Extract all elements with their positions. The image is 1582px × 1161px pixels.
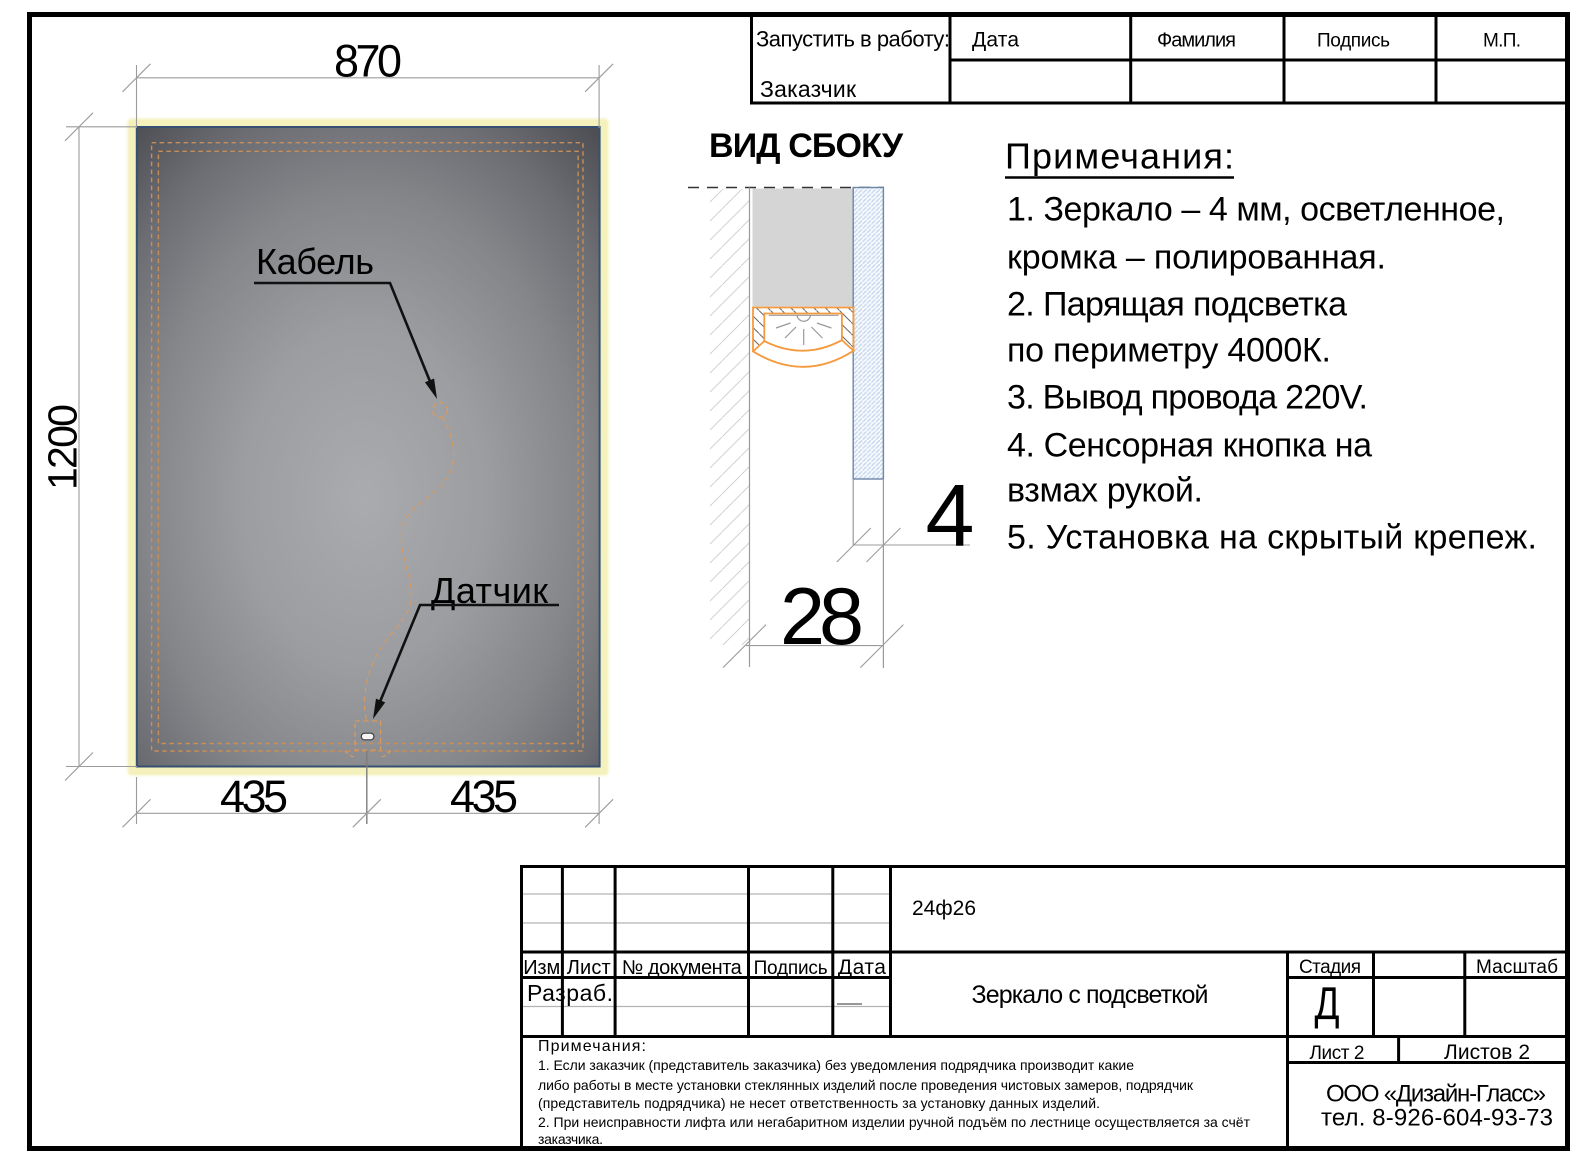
svg-text:1. Если заказчик (представител: 1. Если заказчик (представитель заказчик… xyxy=(538,1057,1134,1073)
svg-text:ООО «Дизайн-Гласс»: ООО «Дизайн-Гласс» xyxy=(1326,1081,1546,1108)
svg-text:либо работы в месте установки: либо работы в месте установки стеклянных… xyxy=(538,1077,1194,1093)
svg-text:1. Зеркало – 4 мм, осветленное: 1. Зеркало – 4 мм, осветленное, xyxy=(1007,191,1505,229)
svg-text:24ф26: 24ф26 xyxy=(912,897,976,920)
svg-text:Заказчик: Заказчик xyxy=(760,76,857,102)
svg-text:(представитель подрядчика) не: (представитель подрядчика) не несет отве… xyxy=(538,1095,1100,1111)
svg-text:Подпись: Подпись xyxy=(754,958,828,979)
svg-text:Подпись: Подпись xyxy=(1317,31,1390,52)
svg-text:2. При неисправности лифта или: 2. При неисправности лифта или негабарит… xyxy=(538,1114,1251,1130)
svg-text:28: 28 xyxy=(780,572,864,662)
svg-text:2. Парящая подсветка: 2. Парящая подсветка xyxy=(1007,286,1347,324)
svg-text:3. Вывод провода 220V.: 3. Вывод провода 220V. xyxy=(1007,379,1368,417)
svg-text:Зеркало с подсветкой: Зеркало с подсветкой xyxy=(972,981,1209,1009)
svg-text:Примечания:: Примечания: xyxy=(1005,136,1234,177)
svg-text:Кабель: Кабель xyxy=(256,241,374,282)
svg-text:Фамилия: Фамилия xyxy=(1157,30,1236,52)
svg-text:Изм: Изм xyxy=(523,957,560,979)
svg-text:заказчика.: заказчика. xyxy=(538,1131,603,1147)
svg-text:М.П.: М.П. xyxy=(1483,31,1521,52)
svg-text:Стадия: Стадия xyxy=(1299,957,1361,978)
svg-text:Дата: Дата xyxy=(838,956,886,979)
svg-text:4: 4 xyxy=(926,466,975,565)
svg-text:4. Сенсорная кнопка на: 4. Сенсорная кнопка на xyxy=(1007,427,1372,465)
svg-text:кромка – полированная.: кромка – полированная. xyxy=(1007,239,1386,277)
svg-text:Д: Д xyxy=(1315,977,1340,1029)
svg-text:Масштаб: Масштаб xyxy=(1476,957,1558,978)
svg-text:870: 870 xyxy=(334,36,402,87)
svg-text:взмах рукой.: взмах рукой. xyxy=(1007,472,1203,510)
svg-text:ВИД СБОКУ: ВИД СБОКУ xyxy=(709,127,904,165)
svg-text:435: 435 xyxy=(220,771,288,822)
svg-text:5. Установка на скрытый крепеж: 5. Установка на скрытый крепеж. xyxy=(1007,519,1537,557)
svg-text:по периметру 4000К.: по периметру 4000К. xyxy=(1007,332,1331,370)
svg-text:1200: 1200 xyxy=(40,404,86,490)
svg-text:Дата: Дата xyxy=(972,29,1019,52)
svg-text:Примечания:: Примечания: xyxy=(538,1038,646,1055)
svg-text:Листов 2: Листов 2 xyxy=(1444,1041,1530,1064)
svg-text:тел. 8-926-604-93-73: тел. 8-926-604-93-73 xyxy=(1321,1105,1553,1132)
svg-text:№ документа: № документа xyxy=(622,957,743,979)
svg-text:435: 435 xyxy=(450,771,518,822)
svg-text:Запустить в работу:: Запустить в работу: xyxy=(756,27,950,52)
svg-text:Разраб.: Разраб. xyxy=(527,980,613,1006)
svg-text:Лист 2: Лист 2 xyxy=(1310,1043,1365,1064)
svg-text:Лист: Лист xyxy=(567,957,611,979)
